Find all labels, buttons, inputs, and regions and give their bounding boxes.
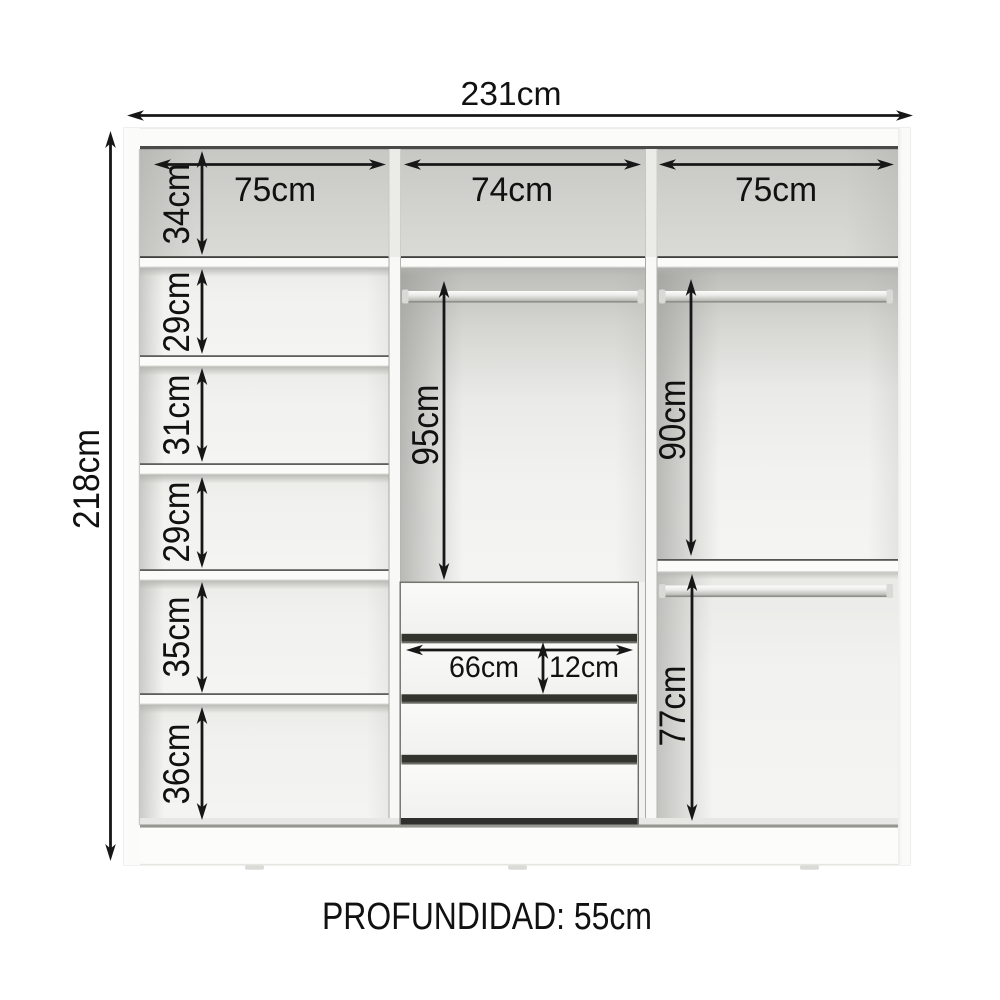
svg-text:34cm: 34cm (156, 164, 197, 245)
svg-text:29cm: 29cm (156, 482, 197, 563)
svg-text:PROFUNDIDAD: 55cm: PROFUNDIDAD: 55cm (322, 896, 652, 938)
svg-text:31cm: 31cm (156, 375, 197, 456)
svg-text:77cm: 77cm (652, 666, 693, 747)
svg-text:75cm: 75cm (735, 171, 817, 209)
svg-text:12cm: 12cm (549, 651, 619, 684)
svg-text:231cm: 231cm (461, 75, 562, 112)
svg-text:35cm: 35cm (156, 597, 197, 678)
svg-text:74cm: 74cm (471, 171, 553, 209)
svg-text:90cm: 90cm (652, 380, 693, 461)
svg-text:66cm: 66cm (449, 651, 519, 684)
svg-text:218cm: 218cm (66, 429, 107, 529)
svg-text:29cm: 29cm (156, 272, 197, 353)
svg-text:95cm: 95cm (405, 385, 446, 466)
svg-text:75cm: 75cm (234, 171, 316, 209)
svg-text:36cm: 36cm (156, 724, 197, 805)
